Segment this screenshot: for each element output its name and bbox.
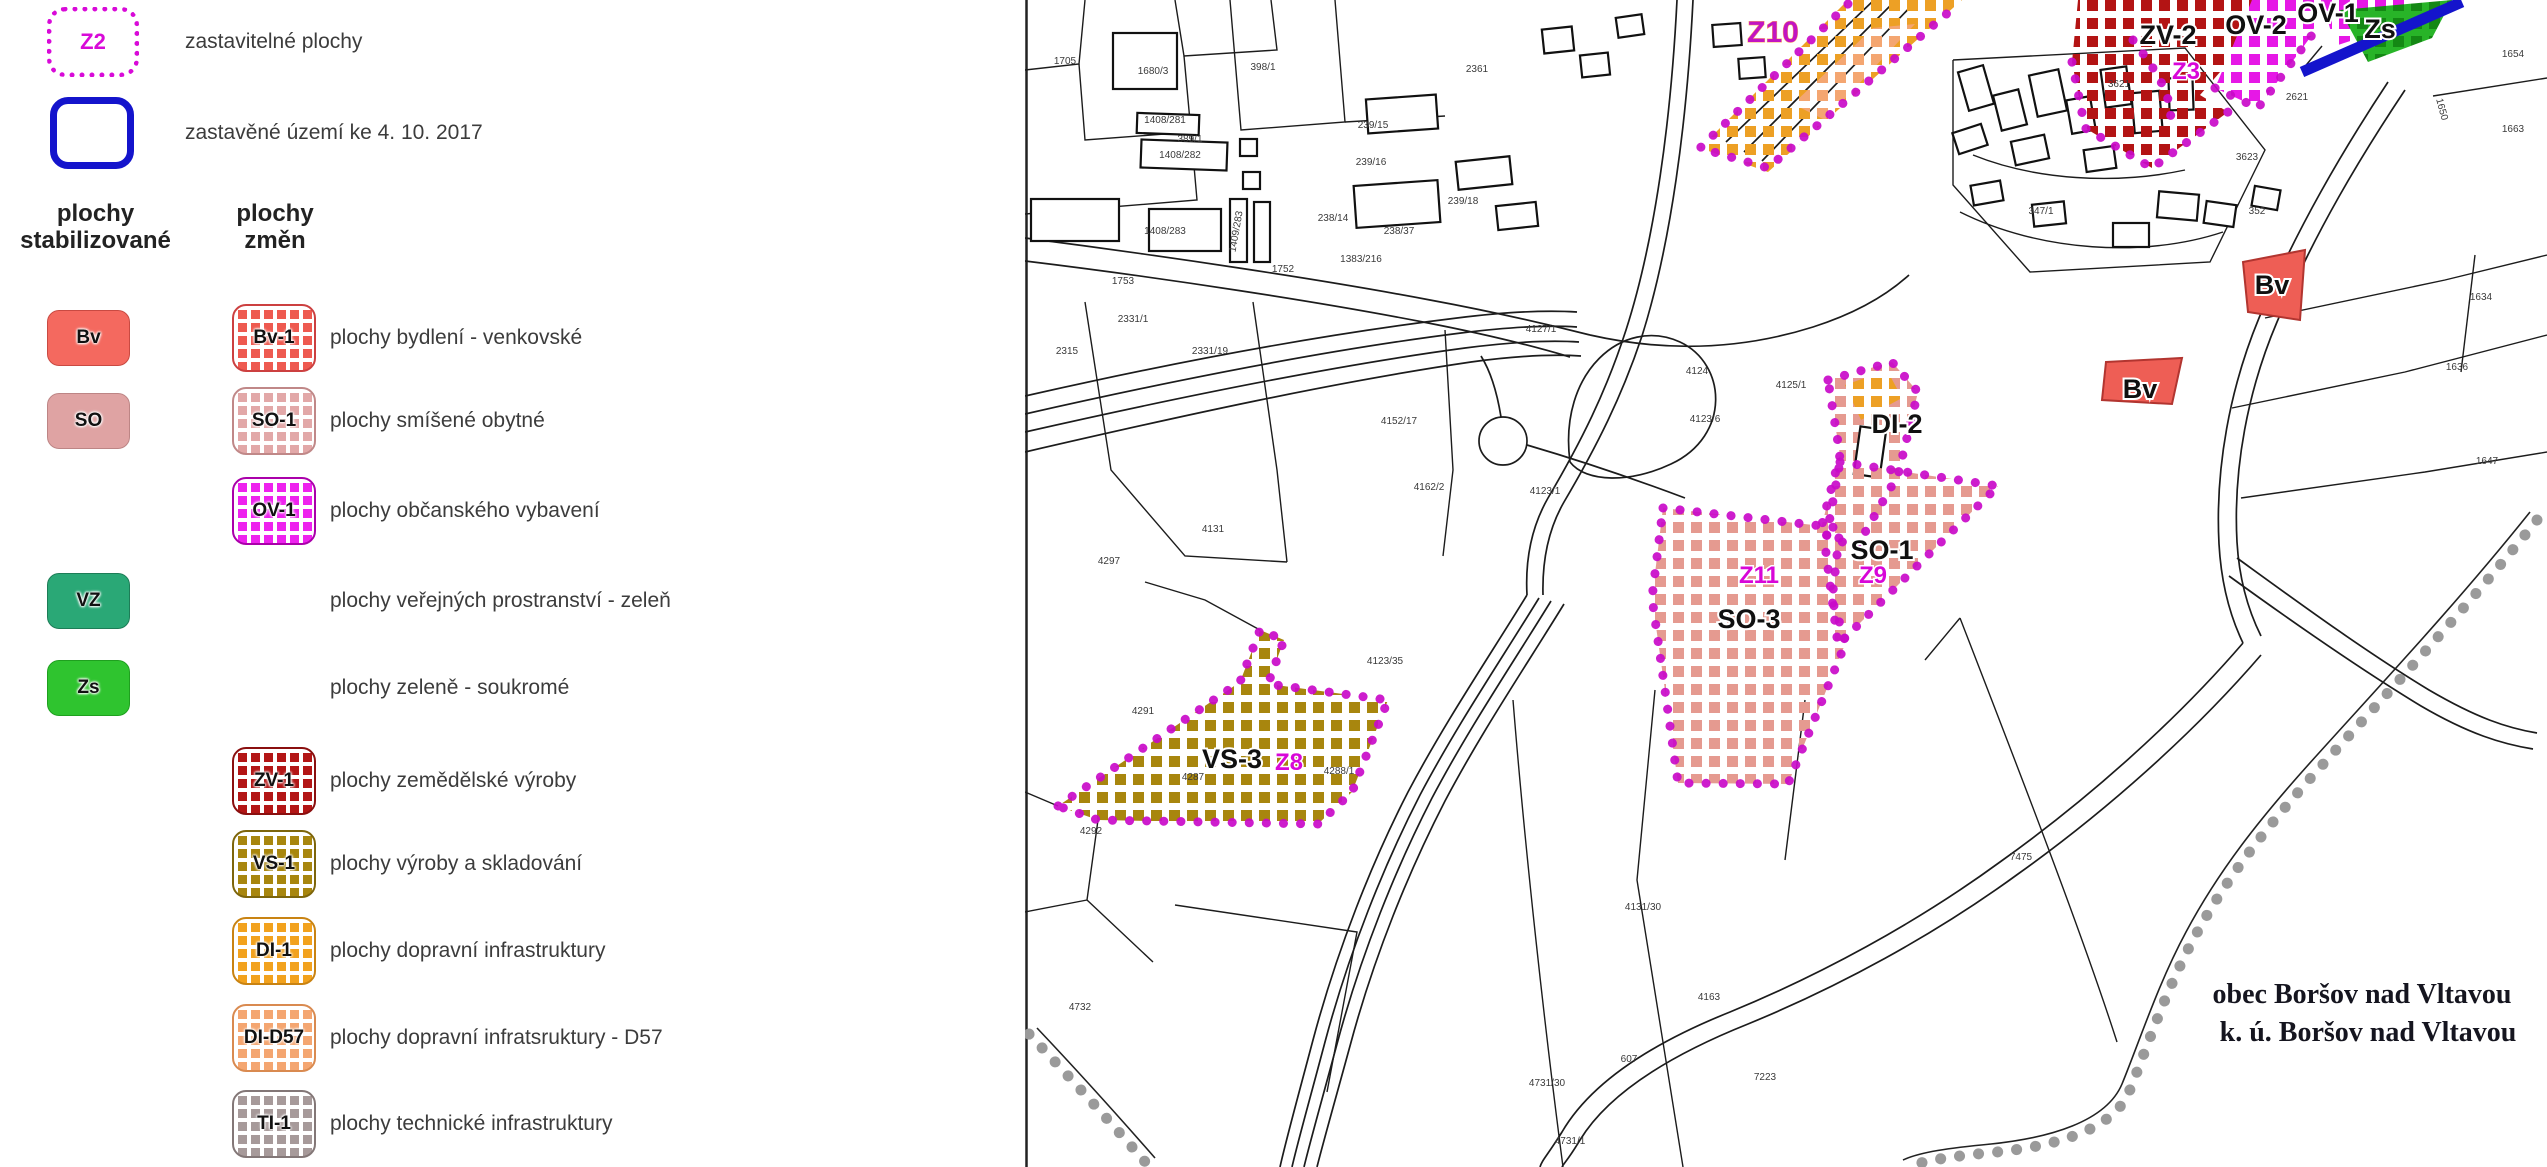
parcel-number: 4123/1 [1530, 486, 1561, 497]
zone-label-Z8: Z8 [1275, 749, 1303, 776]
path-shape [1562, 655, 2261, 1167]
path-shape [2241, 452, 2547, 498]
parcel-number: 4288/1 [1324, 766, 1355, 777]
path-shape [2218, 82, 2388, 643]
path-shape [1280, 595, 1527, 1167]
zone-vs3-z8 [1058, 630, 1388, 824]
legend-row-label: plochy veřejných prostranství - zeleň [330, 565, 671, 637]
parcel-number: 398/1 [1250, 62, 1275, 73]
parcel-number: 4731/30 [1529, 1078, 1566, 1089]
legend-chip-change-ZV-1: ZV-1 [232, 747, 316, 815]
path-shape [1925, 618, 1960, 660]
rect-shape [1580, 53, 1610, 78]
path-shape [1087, 820, 1153, 962]
parcel-number: 1654 [2502, 49, 2525, 60]
parcel-number: 4291 [1132, 706, 1155, 717]
path-shape [1230, 0, 1345, 130]
path-shape [1025, 238, 1590, 335]
path-shape [1903, 512, 2530, 1160]
zone-label-Z9: Z9 [1859, 562, 1887, 589]
zone-label-Bv: Bv [2255, 270, 2290, 300]
zone-label-SO-3: SO-3 [1717, 604, 1780, 634]
rect-shape [1240, 139, 1257, 156]
parcel-number: 1705 [1054, 56, 1077, 67]
parcel-number: 1650 [2433, 97, 2449, 122]
rect-shape [1542, 26, 1574, 53]
legend-row-label: plochy dopravní infrastruktury [330, 915, 605, 987]
legend-chip-stable-Bv: Bv [47, 310, 130, 366]
legend-chip-change-OV-1: OV-1 [232, 477, 316, 545]
path-shape [1481, 356, 1501, 417]
legend-row-Zs: Zsplochy zeleně - soukromé [0, 652, 1025, 724]
rect-shape [1712, 23, 1741, 47]
parcel-number: 389/1 [1177, 134, 1202, 145]
municipality-label: obec Boršov nad Vltavou [2213, 979, 2512, 1010]
legend-row-VS-1: VS-1plochy výroby a skladování [0, 828, 1025, 900]
rect-shape [2011, 135, 2049, 166]
parcel-number: 239/15 [1358, 120, 1389, 131]
parcel-number: 1634 [2470, 292, 2493, 303]
legend-row-DI-1: DI-1plochy dopravní infrastruktury [0, 915, 1025, 987]
parcel-number: 4131 [1202, 524, 1225, 535]
rect-shape [1496, 202, 1538, 230]
rect-shape [1113, 33, 1177, 89]
parcel-number: 4297 [1098, 556, 1121, 567]
rect-shape [2029, 69, 2067, 116]
parcel-number: 4732 [1069, 1002, 1092, 1013]
path-shape [1909, 520, 2537, 1167]
zone-label-Zs: Zs [2364, 14, 2396, 44]
municipality-label: k. ú. Boršov nad Vltavou [2220, 1017, 2517, 1048]
path-shape [2265, 255, 2547, 318]
path-shape [1025, 355, 1581, 452]
legend-row-DI-D57: DI-D57plochy dopravní infratsruktury - D… [0, 1002, 1025, 1074]
path-shape [1025, 311, 1577, 396]
legend-chip-change-DI-D57: DI-D57 [232, 1004, 316, 1072]
legend-row-ZV-1: ZV-1plochy zemědělské výroby [0, 745, 1025, 817]
zone-label-SO-1: SO-1 [1850, 535, 1913, 565]
legend-row-OV-1: OV-1plochy občanského vybavení [0, 475, 1025, 547]
parcel-number: 7475 [2010, 852, 2033, 863]
legend-row-label: plochy zeleně - soukromé [330, 652, 569, 724]
parcel-number: 238/14 [1318, 213, 1349, 224]
path-shape [2232, 335, 2547, 408]
legend-chip-change-DI-1: DI-1 [232, 917, 316, 985]
parcel-number: 1408/281 [1144, 115, 1186, 126]
parcel-number: 4124 [1686, 366, 1709, 377]
parcel-number: 607 [1621, 1054, 1638, 1065]
legend-row-SO-1: SOSO-1plochy smíšené obytné [0, 385, 1025, 457]
legend-chip-stable-SO: SO [47, 393, 130, 449]
parcel-number: 4731/1 [1555, 1136, 1586, 1147]
zastavitelne-plochy-label: zastavitelné plochy [185, 30, 362, 54]
zone-label-Z11: Z11 [1739, 562, 1779, 589]
zastavene-uzemi-label: zastavěné území ke 4. 10. 2017 [185, 121, 483, 145]
path-shape [1590, 275, 1909, 346]
rect-shape [1993, 89, 2027, 130]
parcel-number: 3623 [2236, 152, 2259, 163]
zone-label-DI-2: DI-2 [1871, 409, 1922, 439]
path-shape [1145, 582, 1260, 630]
header-plochy-zmen: plochy změn [220, 200, 330, 254]
path-shape [1025, 792, 1058, 806]
roundabout [1479, 417, 1527, 465]
path-shape [1569, 336, 1716, 478]
rect-shape [1031, 199, 1119, 241]
parcel-number: 4127/1 [1526, 324, 1557, 335]
rect-shape [2157, 191, 2199, 220]
path-shape [1037, 1028, 1155, 1158]
zone-label-ZV-2: ZV-2 [2139, 20, 2196, 50]
rect-shape [1616, 14, 1645, 37]
path-shape [1175, 0, 1277, 56]
legend-row-label: plochy smíšené obytné [330, 385, 545, 457]
parcel-number: 238/37 [1384, 226, 1415, 237]
parcel-number: 1408/282 [1159, 150, 1201, 161]
legend-chip-change-VS-1: VS-1 [232, 830, 316, 898]
path-shape [1317, 604, 1564, 1167]
legend-row-Bv-1: BvBv-1plochy bydlení - venkovské [0, 302, 1025, 374]
legend-chip-change-SO-1: SO-1 [232, 387, 316, 455]
path-shape [1025, 326, 1577, 414]
zone-label-OV-2: OV-2 [2225, 10, 2287, 40]
parcel-number: 2331/1 [1118, 314, 1149, 325]
zone-label-OV-1: OV-1 [2297, 0, 2359, 28]
path-shape [1025, 261, 1570, 357]
parcel-number: 4162/2 [1414, 482, 1445, 493]
parcel-number: 347/1 [2028, 206, 2053, 217]
legend-row-TI-1: TI-1plochy technické infrastruktury [0, 1088, 1025, 1160]
path-shape [2236, 90, 2405, 636]
legend-row-label: plochy technické infrastruktury [330, 1088, 612, 1160]
parcel-number: 1753 [1112, 276, 1135, 287]
parcel-number: 3621 [2108, 79, 2131, 90]
legend-chip-stable-Zs: Zs [47, 660, 130, 716]
zone-so3-z11 [1652, 508, 1846, 784]
parcel-number: 4123/6 [1690, 414, 1721, 425]
parcel-number: 2331/19 [1192, 346, 1229, 357]
parcel-number: 1636 [2446, 362, 2469, 373]
rect-shape [2113, 223, 2149, 247]
rect-shape [1970, 181, 2003, 206]
rect-shape [1354, 180, 1441, 228]
parcel-number: 1383/216 [1340, 254, 1382, 265]
legend-row-VZ: VZplochy veřejných prostranství - zeleň [0, 565, 1025, 637]
parcel-number: 4292 [1080, 826, 1103, 837]
zone-label-VS-3: VS-3 [1202, 744, 1262, 774]
zastavitelne-plochy-symbol: Z2 [47, 7, 139, 77]
path-shape [1960, 618, 2117, 1042]
parcel-number: 1680/3 [1138, 66, 1169, 77]
legend-chip-change-Bv-1: Bv-1 [232, 304, 316, 372]
parcel-number: 4125/1 [1776, 380, 1807, 391]
legend-row-label: plochy bydlení - venkovské [330, 302, 582, 374]
legend-row-label: plochy občanského vybavení [330, 475, 600, 547]
legend-chip-change-TI-1: TI-1 [232, 1090, 316, 1158]
parcel-number: 352 [2249, 206, 2266, 217]
parcel-number: 4123/35 [1367, 656, 1404, 667]
parcel-number: 4163 [1698, 992, 1721, 1003]
parcel-number: 2315 [1056, 346, 1079, 357]
rect-shape [2084, 146, 2117, 172]
path-shape [1304, 601, 1551, 1167]
parcel-number: 4152/17 [1381, 416, 1418, 427]
parcel-number: 2361 [1466, 64, 1489, 75]
parcel-number: 1663 [2502, 124, 2525, 135]
parcel-number: 1408/283 [1144, 226, 1186, 237]
path-shape [2237, 558, 2537, 733]
path-shape [1025, 900, 1087, 912]
header-plochy-stabilizovane: plochy stabilizované [8, 200, 183, 254]
rect-shape [2204, 201, 2237, 227]
zastavene-uzemi-symbol [50, 97, 134, 169]
parcel-number: 1647 [2476, 456, 2499, 467]
parcel-number: 239/16 [1356, 157, 1387, 168]
legend-row-label: plochy výroby a skladování [330, 828, 582, 900]
path-shape [2229, 576, 2533, 749]
map-canvas: Z10ZV-2Z3OV-2OV-1ZsBvBvDI-2SO-1Z9Z11SO-3… [1025, 0, 2547, 1167]
rect-shape [1243, 172, 1260, 189]
path-shape [1253, 302, 1287, 562]
municipality-name-labels: obec Boršov nad Vltavouk. ú. Boršov nad … [2213, 979, 2517, 1048]
zone-label-Bv: Bv [2123, 374, 2158, 404]
rect-shape [1254, 202, 1270, 262]
parcel-number: 4287 [1182, 772, 1205, 783]
path-shape [1029, 1034, 1147, 1164]
path-shape [1443, 330, 1453, 556]
legend-row-label: plochy zemědělské výroby [330, 745, 576, 817]
path-shape [1175, 905, 1357, 1092]
path-shape [2433, 78, 2547, 96]
rect-shape [1456, 156, 1513, 189]
z2-symbol-code: Z2 [80, 29, 106, 55]
legend-row-label: plochy dopravní infratsruktury - D57 [330, 1002, 663, 1074]
rect-shape [1958, 65, 1994, 111]
parcel-number: 4131/30 [1625, 902, 1662, 913]
rect-shape [1738, 57, 1765, 79]
path-shape [1527, 0, 1677, 595]
parcel-number: 1752 [1272, 264, 1295, 275]
legend-chip-stable-VZ: VZ [47, 573, 130, 629]
rect-shape [1952, 124, 1987, 154]
zone-label-Z10: Z10 [1747, 16, 1799, 49]
parcel-number: 239/18 [1448, 196, 1479, 207]
parcel-number: 2621 [2286, 92, 2309, 103]
legend-panel: Z2 zastavitelné plochy zastavěné území k… [0, 0, 1025, 1167]
path-shape [1513, 700, 1563, 1167]
urban-plan-page: Z2 zastavitelné plochy zastavěné území k… [0, 0, 2547, 1167]
parcel-number: 7223 [1754, 1072, 1777, 1083]
zone-label-Z3: Z3 [2172, 58, 2200, 85]
zoning-map-svg: Z10ZV-2Z3OV-2OV-1ZsBvBvDI-2SO-1Z9Z11SO-3… [1025, 0, 2547, 1167]
